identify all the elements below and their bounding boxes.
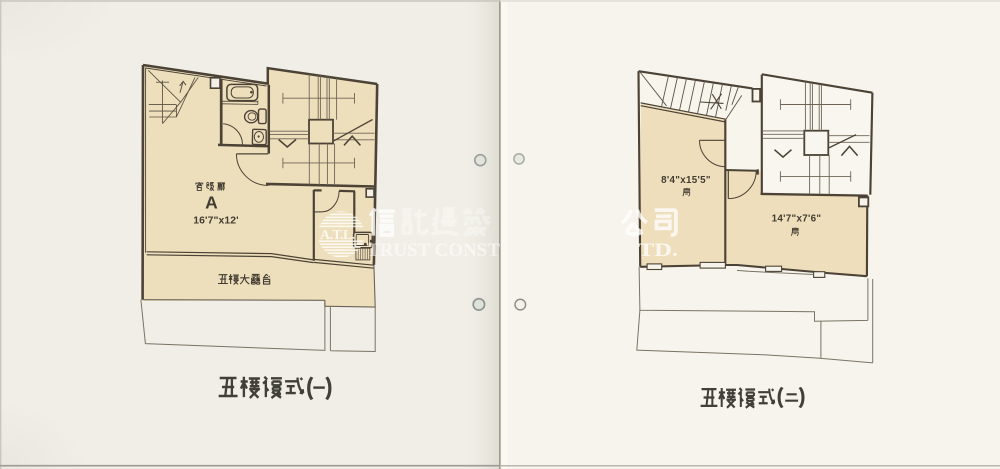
svg-text:A.T.L.: A.T.L. — [320, 227, 355, 242]
svg-text:A: A — [205, 192, 218, 212]
svg-text:TRUST CONST: TRUST CONST — [367, 241, 501, 261]
svg-text:16'7"x12': 16'7"x12' — [193, 215, 238, 226]
svg-text:TD.: TD. — [638, 241, 678, 261]
svg-text:14'7"x7'6": 14'7"x7'6" — [772, 214, 822, 225]
svg-text:8'4"x15'5": 8'4"x15'5" — [661, 175, 711, 186]
